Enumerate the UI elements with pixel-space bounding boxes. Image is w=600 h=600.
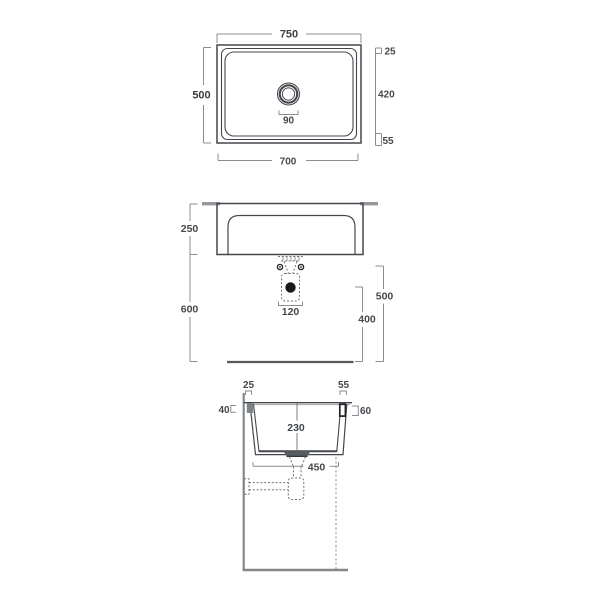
section-base-width-label: 450 <box>308 462 326 474</box>
section-drain-boss <box>284 451 311 456</box>
section-front-rim-label: 25 <box>243 380 255 391</box>
section-back-lip-label: 60 <box>360 406 372 417</box>
section-front-lip-tab <box>247 404 253 414</box>
section-back-bracket <box>340 404 346 416</box>
plan-overall-width-label: 750 <box>280 29 298 41</box>
elevation-trap-height-label: 400 <box>358 314 376 326</box>
plan-overall-depth-label: 500 <box>192 90 210 102</box>
elevation-basin-height-label: 250 <box>181 223 199 235</box>
elevation-trap-width-label: 120 <box>282 306 300 318</box>
technical-drawing: 750 90 500 <box>0 0 600 600</box>
section-back-rim-label: 55 <box>338 380 350 391</box>
elevation-outlet-height-label: 500 <box>376 291 394 303</box>
plan-bottom-width-label: 700 <box>280 157 297 168</box>
plan-rim-front-label: 25 <box>385 47 397 58</box>
section-bowl-depth-label: 230 <box>287 422 305 434</box>
plan-drain-label: 90 <box>283 116 295 127</box>
plan-rim-back-label: 55 <box>383 136 395 147</box>
section-dim-bowl-depth: 230 <box>287 421 307 435</box>
elevation-rim-to-floor-label: 600 <box>181 304 199 316</box>
elevation-waste-outlet <box>285 282 295 292</box>
drawing-background <box>0 0 600 600</box>
section-front-lip-label: 40 <box>218 405 230 416</box>
plan-inner-depth-label: 420 <box>378 90 395 101</box>
